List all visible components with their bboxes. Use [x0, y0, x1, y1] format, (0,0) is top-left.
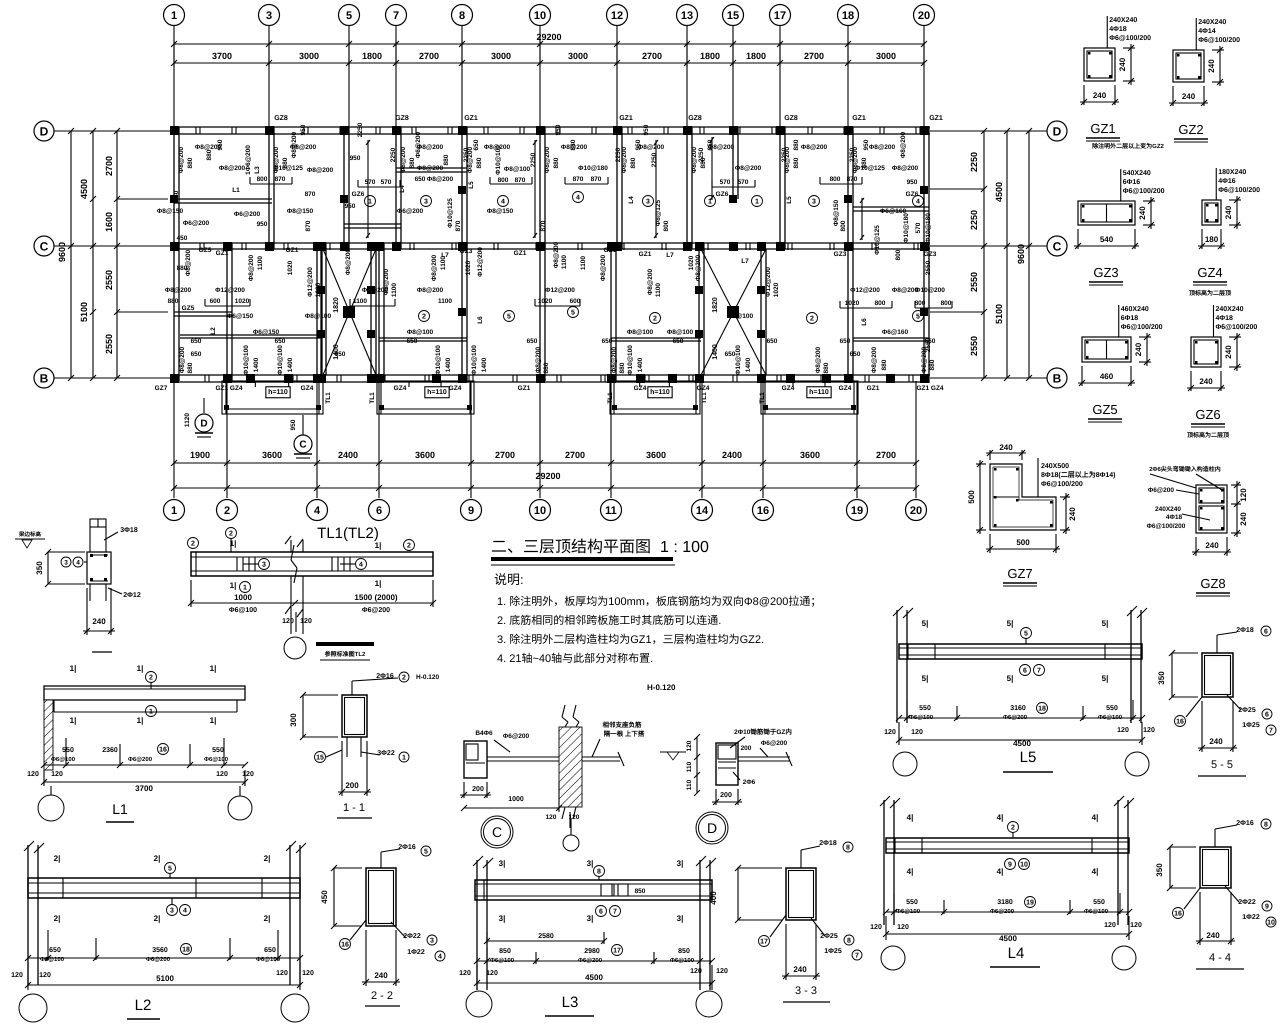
svg-text:1400: 1400: [445, 357, 452, 372]
svg-text:GZ8: GZ8: [274, 115, 288, 122]
svg-text:Φ6@200: Φ6@200: [128, 756, 153, 763]
svg-text:2: 2: [229, 531, 233, 538]
svg-text:3600: 3600: [262, 450, 282, 460]
svg-text:650: 650: [840, 338, 851, 345]
svg-text:1 - 1: 1 - 1: [343, 802, 365, 814]
svg-text:1: 1: [368, 199, 372, 206]
svg-text:19: 19: [851, 505, 863, 517]
svg-text:800: 800: [915, 300, 926, 307]
svg-text:GZ4: GZ4: [634, 385, 647, 392]
svg-text:950: 950: [257, 221, 268, 228]
svg-text:h=110: h=110: [809, 388, 829, 396]
svg-text:Φ8@200: Φ8@200: [544, 147, 551, 174]
svg-text:17: 17: [774, 10, 786, 22]
svg-text:240: 240: [793, 965, 807, 974]
svg-text:1100: 1100: [438, 298, 452, 305]
svg-text:L7: L7: [666, 252, 674, 259]
svg-text:950: 950: [643, 124, 650, 135]
svg-text:2Φ22: 2Φ22: [403, 933, 421, 940]
svg-text:650: 650: [191, 338, 202, 345]
svg-text:120: 120: [27, 771, 39, 778]
svg-text:2Φ12: 2Φ12: [123, 592, 141, 599]
svg-text:TL1(TL2): TL1(TL2): [317, 525, 379, 542]
svg-text:4|: 4|: [1092, 813, 1099, 822]
svg-text:880: 880: [177, 265, 188, 272]
svg-text:5100: 5100: [79, 302, 89, 322]
svg-text:12: 12: [611, 10, 623, 22]
svg-text:870: 870: [305, 220, 312, 231]
svg-text:Φ6@100/200: Φ6@100/200: [1198, 36, 1240, 44]
svg-text:Φ8@100: Φ8@100: [305, 313, 332, 320]
svg-text:Φ12@200: Φ12@200: [850, 287, 880, 294]
svg-text:Φ6@100/200: Φ6@100/200: [1121, 323, 1163, 331]
svg-text:4: 4: [359, 562, 363, 569]
svg-text:4: 4: [916, 199, 920, 206]
svg-text:1: 1: [243, 585, 247, 592]
svg-text:Φ6@200: Φ6@200: [503, 733, 530, 740]
svg-text:240: 240: [1138, 206, 1147, 220]
svg-text:4Φ18: 4Φ18: [1216, 315, 1234, 322]
svg-text:16: 16: [159, 747, 167, 754]
svg-text:L6: L6: [861, 318, 868, 326]
svg-text:500: 500: [1016, 538, 1030, 547]
svg-text:1100: 1100: [440, 256, 447, 270]
svg-text:120: 120: [716, 968, 728, 975]
svg-text:C: C: [492, 824, 502, 840]
svg-text:1500 (2000): 1500 (2000): [354, 593, 397, 602]
svg-text:880: 880: [443, 154, 450, 165]
svg-text:8: 8: [1264, 822, 1268, 829]
svg-text:2|: 2|: [54, 854, 61, 863]
svg-text:Φ8@150: Φ8@150: [287, 208, 314, 215]
svg-text:7: 7: [393, 10, 399, 22]
svg-text:16: 16: [1174, 911, 1182, 918]
svg-text:8: 8: [847, 938, 851, 945]
svg-text:950: 950: [635, 139, 642, 150]
svg-text:GZ8: GZ8: [784, 115, 798, 122]
svg-text:Φ8@200: Φ8@200: [417, 287, 444, 294]
svg-text:GZ4: GZ4: [1197, 265, 1222, 280]
svg-text:1800: 1800: [746, 51, 766, 61]
svg-text:880: 880: [619, 362, 626, 373]
svg-text:顶标高为二层顶: 顶标高为二层顶: [1187, 431, 1229, 439]
svg-text:4500: 4500: [999, 934, 1017, 943]
svg-text:2700: 2700: [495, 450, 515, 460]
svg-text:550: 550: [62, 747, 74, 754]
svg-text:600: 600: [570, 298, 581, 305]
svg-text:2250: 2250: [390, 147, 397, 162]
svg-text:1100: 1100: [353, 298, 367, 305]
svg-text:L5: L5: [786, 196, 793, 204]
svg-text:4 - 4: 4 - 4: [1209, 952, 1231, 964]
svg-text:450: 450: [177, 235, 188, 242]
svg-text:GZ1: GZ1: [852, 115, 866, 122]
svg-text:8: 8: [597, 869, 601, 876]
svg-text:Φ6@200: Φ6@200: [415, 132, 422, 159]
svg-text:880: 880: [881, 359, 888, 370]
svg-text:300: 300: [289, 713, 298, 727]
svg-text:650: 650: [415, 176, 426, 183]
svg-text:Φ8@200: Φ8@200: [871, 347, 878, 374]
svg-text:3600: 3600: [415, 450, 435, 460]
svg-text:570: 570: [381, 179, 392, 186]
svg-text:C: C: [299, 440, 306, 451]
svg-text:3|: 3|: [677, 859, 684, 868]
svg-text:2Φ10锄筋锄于GZ内: 2Φ10锄筋锄于GZ内: [734, 728, 792, 736]
svg-text:5: 5: [346, 10, 352, 22]
svg-text:2550: 2550: [925, 260, 932, 275]
svg-text:870: 870: [591, 176, 602, 183]
svg-text:1|: 1|: [375, 541, 382, 550]
svg-text:850: 850: [678, 948, 690, 955]
svg-text:Φ8@200: Φ8@200: [600, 255, 607, 282]
svg-text:二、三层顶结构平面图: 二、三层顶结构平面图: [491, 538, 651, 556]
svg-text:570: 570: [915, 222, 922, 233]
svg-text:Φ6@100: Φ6@100: [204, 756, 229, 763]
svg-text:3: 3: [266, 10, 272, 22]
svg-text:相邻支座负筋: 相邻支座负筋: [603, 721, 643, 729]
svg-text:880: 880: [570, 139, 577, 150]
svg-text:Φ8@200: Φ8@200: [345, 249, 352, 276]
svg-text:H-0.120: H-0.120: [416, 674, 440, 681]
svg-text:240: 240: [999, 443, 1013, 452]
svg-text:1|: 1|: [137, 716, 144, 725]
svg-text:7: 7: [613, 909, 617, 916]
svg-text:1900: 1900: [190, 450, 210, 460]
svg-text:4|: 4|: [1092, 867, 1099, 876]
svg-text:GZ8: GZ8: [1200, 576, 1225, 591]
svg-text:2700: 2700: [419, 51, 439, 61]
svg-text:GZ6: GZ6: [1195, 407, 1220, 422]
svg-text:Φ6@100/200: Φ6@100/200: [1109, 34, 1151, 42]
svg-text:Φ10@125: Φ10@125: [874, 225, 881, 255]
svg-text:9: 9: [1008, 862, 1012, 869]
svg-text:7: 7: [1037, 668, 1041, 675]
svg-text:120: 120: [1130, 922, 1142, 929]
svg-text:240: 240: [1118, 57, 1127, 71]
svg-text:L6: L6: [477, 316, 484, 324]
svg-text:2: 2: [1011, 825, 1015, 832]
svg-text:Φ8@200: Φ8@200: [621, 147, 628, 174]
svg-text:Φ10@100: Φ10@100: [277, 345, 284, 375]
svg-text:6Φ18: 6Φ18: [1121, 315, 1139, 322]
svg-text:1Φ6@200: 1Φ6@200: [245, 145, 252, 175]
svg-text:550: 550: [1093, 899, 1105, 906]
svg-text:2: 2: [224, 505, 230, 517]
svg-text:9600: 9600: [57, 242, 67, 262]
svg-text:950: 950: [350, 155, 361, 162]
svg-text:240X240: 240X240: [1198, 19, 1226, 26]
svg-text:3 - 3: 3 - 3: [795, 985, 817, 997]
svg-text:3|: 3|: [499, 914, 506, 923]
svg-text:350: 350: [1155, 863, 1164, 877]
svg-text:550: 550: [919, 705, 931, 712]
svg-text:Φ8@100: Φ8@100: [627, 329, 654, 336]
svg-text:Φ6@200: Φ6@200: [183, 220, 210, 227]
svg-text:Φ8@200: Φ8@200: [892, 165, 919, 172]
svg-text:880: 880: [168, 298, 179, 305]
svg-text:B4Φ6: B4Φ6: [475, 730, 493, 737]
svg-text:2250: 2250: [781, 147, 788, 162]
svg-text:D: D: [1053, 124, 1062, 138]
svg-text:Φ6@150: Φ6@150: [227, 313, 254, 320]
svg-text:1100: 1100: [391, 283, 398, 297]
svg-text:2: 2: [402, 675, 406, 682]
svg-text:850: 850: [499, 948, 511, 955]
svg-text:650: 650: [49, 947, 61, 954]
svg-text:880: 880: [543, 362, 550, 373]
svg-text:240: 240: [1199, 377, 1213, 386]
svg-text:3|: 3|: [677, 914, 684, 923]
svg-text:240: 240: [1206, 931, 1220, 940]
svg-text:15: 15: [727, 10, 739, 22]
svg-text:GZ1: GZ1: [1090, 121, 1115, 136]
svg-text:Φ6@100: Φ6@100: [51, 756, 76, 763]
svg-text:B: B: [40, 371, 49, 385]
svg-text:5: 5: [916, 314, 920, 321]
svg-text:1400: 1400: [712, 344, 719, 360]
svg-text:L4: L4: [628, 196, 635, 204]
svg-text:1: 1: [149, 709, 153, 716]
svg-text:Φ8@200: Φ8@200: [900, 132, 907, 159]
svg-text:L2: L2: [210, 327, 217, 335]
svg-text:TL1: TL1: [369, 392, 376, 404]
svg-text:Φ8@200: Φ8@200: [178, 147, 185, 174]
svg-text:19: 19: [1026, 900, 1034, 907]
svg-text:GZ4: GZ4: [301, 385, 314, 392]
svg-text:540X240: 540X240: [1123, 170, 1151, 177]
svg-text:200: 200: [741, 745, 752, 752]
svg-text:Φ10@100: Φ10@100: [243, 345, 250, 375]
svg-text:1820: 1820: [333, 297, 340, 313]
svg-text:2Φ18: 2Φ18: [819, 840, 837, 847]
svg-text:880: 880: [187, 157, 194, 168]
svg-text:5: 5: [507, 314, 511, 321]
svg-text:隔一根 上下搭: 隔一根 上下搭: [604, 730, 645, 738]
svg-text:1400: 1400: [637, 357, 644, 372]
svg-text:6: 6: [1264, 629, 1268, 636]
svg-text:1|: 1|: [230, 581, 237, 590]
svg-text:4500: 4500: [585, 973, 603, 982]
svg-text:120: 120: [216, 771, 228, 778]
svg-text:GZ3: GZ3: [834, 251, 847, 258]
svg-text:Φ10@100: Φ10@100: [471, 345, 478, 375]
svg-text:GZ6: GZ6: [352, 191, 365, 198]
svg-text:1020: 1020: [773, 282, 780, 297]
svg-text:Φ8@200: Φ8@200: [735, 165, 762, 172]
svg-text:Φ8@200: Φ8@200: [431, 255, 438, 282]
svg-text:梁边标高: 梁边标高: [18, 531, 42, 538]
svg-text:120: 120: [242, 771, 254, 778]
svg-text:840: 840: [173, 190, 180, 201]
svg-text:2: 2: [407, 543, 411, 550]
svg-text:2250: 2250: [969, 210, 979, 230]
svg-text:1Φ25: 1Φ25: [824, 948, 842, 955]
svg-text:Φ8@200: Φ8@200: [400, 147, 407, 174]
svg-text:2 - 2: 2 - 2: [371, 990, 393, 1002]
svg-text:4Φ16: 4Φ16: [1218, 178, 1236, 185]
svg-text:450: 450: [320, 890, 329, 904]
svg-text:550: 550: [212, 747, 224, 754]
svg-text:GZ1: GZ1: [464, 115, 478, 122]
svg-text:880: 880: [206, 149, 213, 160]
svg-text:240: 240: [1205, 541, 1219, 550]
svg-text:3180: 3180: [997, 899, 1013, 906]
svg-text:1020: 1020: [315, 282, 322, 297]
svg-text:Φ10@100: Φ10@100: [495, 145, 502, 175]
svg-text:Φ8@200: Φ8@200: [815, 347, 822, 374]
svg-text:870: 870: [847, 176, 858, 183]
svg-text:17: 17: [760, 939, 768, 946]
svg-text:4|: 4|: [907, 867, 914, 876]
svg-text:Φ6@100: Φ6@100: [229, 607, 257, 614]
svg-text:1020: 1020: [235, 298, 250, 305]
svg-text:800: 800: [875, 300, 886, 307]
svg-text:Φ8@200: Φ8@200: [179, 347, 186, 374]
svg-text:5|: 5|: [922, 619, 929, 628]
svg-text:1100: 1100: [580, 256, 587, 270]
svg-text:880: 880: [630, 157, 637, 168]
svg-text:Φ8@200: Φ8@200: [647, 269, 654, 296]
svg-text:1000: 1000: [234, 593, 252, 602]
svg-text:TL1: TL1: [325, 392, 332, 404]
svg-text:6: 6: [1265, 712, 1269, 719]
svg-text:Φ8@200: Φ8@200: [417, 165, 444, 172]
svg-text:1120: 1120: [184, 413, 191, 427]
svg-text:GZ1: GZ1: [604, 247, 617, 254]
svg-text:GZ6: GZ6: [906, 191, 919, 198]
svg-text:2700: 2700: [565, 450, 585, 460]
svg-text:1020: 1020: [688, 255, 695, 270]
svg-text:Φ8@200: Φ8@200: [165, 287, 192, 294]
svg-text:4500: 4500: [994, 182, 1004, 202]
svg-text:2: 2: [191, 541, 195, 548]
svg-text:650: 650: [850, 351, 861, 358]
svg-text:4: 4: [501, 199, 505, 206]
svg-text:4Φ18: 4Φ18: [1166, 514, 1183, 521]
svg-text:240: 240: [1224, 345, 1233, 359]
svg-text:D: D: [707, 820, 717, 836]
svg-text:650: 650: [527, 338, 538, 345]
svg-text:3600: 3600: [646, 450, 666, 460]
svg-text:10: 10: [534, 505, 546, 517]
svg-text:2250: 2250: [651, 152, 658, 167]
svg-text:5|: 5|: [1007, 619, 1014, 628]
svg-text:9: 9: [468, 505, 474, 517]
svg-text:800: 800: [895, 249, 902, 260]
svg-text:3700: 3700: [212, 51, 232, 61]
svg-text:3000: 3000: [491, 51, 511, 61]
svg-text:120: 120: [897, 924, 909, 931]
svg-text:650: 650: [407, 338, 418, 345]
svg-text:870: 870: [573, 176, 584, 183]
svg-text:200: 200: [472, 786, 484, 793]
svg-text:Φ8@100: Φ8@100: [407, 329, 434, 336]
svg-text:GZ1: GZ1: [514, 250, 527, 257]
svg-text:3: 3: [430, 938, 434, 945]
svg-text:Φ8@200: Φ8@200: [185, 250, 192, 277]
svg-text:5|: 5|: [1007, 674, 1014, 683]
svg-text:240X240: 240X240: [1155, 506, 1181, 513]
svg-text:4Φ14: 4Φ14: [1198, 28, 1216, 35]
svg-text:TL1: TL1: [759, 392, 766, 404]
svg-text:350: 350: [1157, 671, 1166, 685]
svg-text:120: 120: [1143, 727, 1155, 734]
svg-text:2Φ18: 2Φ18: [1236, 627, 1254, 634]
svg-text:4|: 4|: [907, 813, 914, 822]
svg-text:4Φ18: 4Φ18: [1109, 26, 1127, 33]
svg-text:5|: 5|: [1102, 619, 1109, 628]
svg-text:3|: 3|: [587, 859, 594, 868]
svg-text:1100: 1100: [655, 283, 662, 297]
svg-text:Φ6@100/200: Φ6@100/200: [1218, 186, 1260, 194]
svg-text:Φ8@200: Φ8@200: [691, 147, 698, 174]
svg-text:850: 850: [635, 888, 646, 895]
svg-text:180: 180: [1205, 235, 1219, 244]
svg-text:120: 120: [686, 740, 693, 751]
svg-text:870: 870: [275, 176, 286, 183]
svg-text:2|: 2|: [154, 914, 161, 923]
svg-text:400: 400: [709, 891, 718, 905]
svg-text:GZ5: GZ5: [1092, 402, 1117, 417]
svg-text:Φ8@150: Φ8@150: [487, 208, 514, 215]
svg-text:10: 10: [1267, 920, 1275, 927]
svg-text:1020: 1020: [287, 260, 294, 275]
svg-text:650: 650: [602, 338, 613, 345]
svg-text:950: 950: [290, 419, 297, 430]
svg-text:650: 650: [275, 338, 286, 345]
svg-text:2550: 2550: [969, 272, 979, 292]
svg-text:L5: L5: [1020, 749, 1037, 766]
svg-text:110: 110: [686, 779, 693, 790]
svg-text:Φ10@180: Φ10@180: [903, 213, 910, 243]
svg-text:9600: 9600: [1016, 244, 1026, 264]
svg-text:Φ6@100/200: Φ6@100/200: [1216, 323, 1258, 331]
svg-text:Φ6@160: Φ6@160: [882, 329, 909, 336]
svg-text:240: 240: [1207, 59, 1216, 73]
svg-text:6: 6: [1023, 668, 1027, 675]
svg-text:120: 120: [11, 972, 23, 979]
svg-text:2Φ25: 2Φ25: [1238, 707, 1256, 714]
svg-text:Φ12@200: Φ12@200: [215, 287, 245, 294]
svg-text:950: 950: [863, 139, 870, 150]
svg-text:800: 800: [663, 220, 670, 231]
svg-text:2700: 2700: [104, 156, 114, 176]
svg-text:120: 120: [1104, 922, 1116, 929]
svg-text:h=110: h=110: [427, 388, 447, 396]
svg-text:1|: 1|: [375, 579, 382, 588]
svg-text:3: 3: [812, 199, 816, 206]
svg-text:3: 3: [646, 199, 650, 206]
svg-text:13: 13: [681, 10, 693, 22]
svg-text:880: 880: [929, 359, 936, 370]
svg-text:3|: 3|: [587, 914, 594, 923]
svg-text:240: 240: [1224, 205, 1233, 219]
svg-text:GZ1: GZ1: [639, 251, 652, 258]
svg-text:Φ6@100/200: Φ6@100/200: [1041, 480, 1083, 488]
svg-text:4: 4: [76, 559, 80, 566]
svg-text:5 - 5: 5 - 5: [1211, 759, 1233, 771]
svg-text:2|: 2|: [264, 854, 271, 863]
svg-text:4: 4: [438, 954, 442, 961]
svg-text:3700: 3700: [135, 784, 153, 793]
svg-text:240X500: 240X500: [1041, 463, 1069, 470]
svg-text:GZ4: GZ4: [782, 385, 795, 392]
svg-text:Φ10@100: Φ10@100: [627, 345, 634, 375]
svg-text:6: 6: [599, 909, 603, 916]
svg-text:GZ1 GZ4: GZ1 GZ4: [215, 385, 242, 392]
svg-text:2Φ6尖头弯锄锄入构造柱内: 2Φ6尖头弯锄锄入构造柱内: [1149, 465, 1221, 473]
